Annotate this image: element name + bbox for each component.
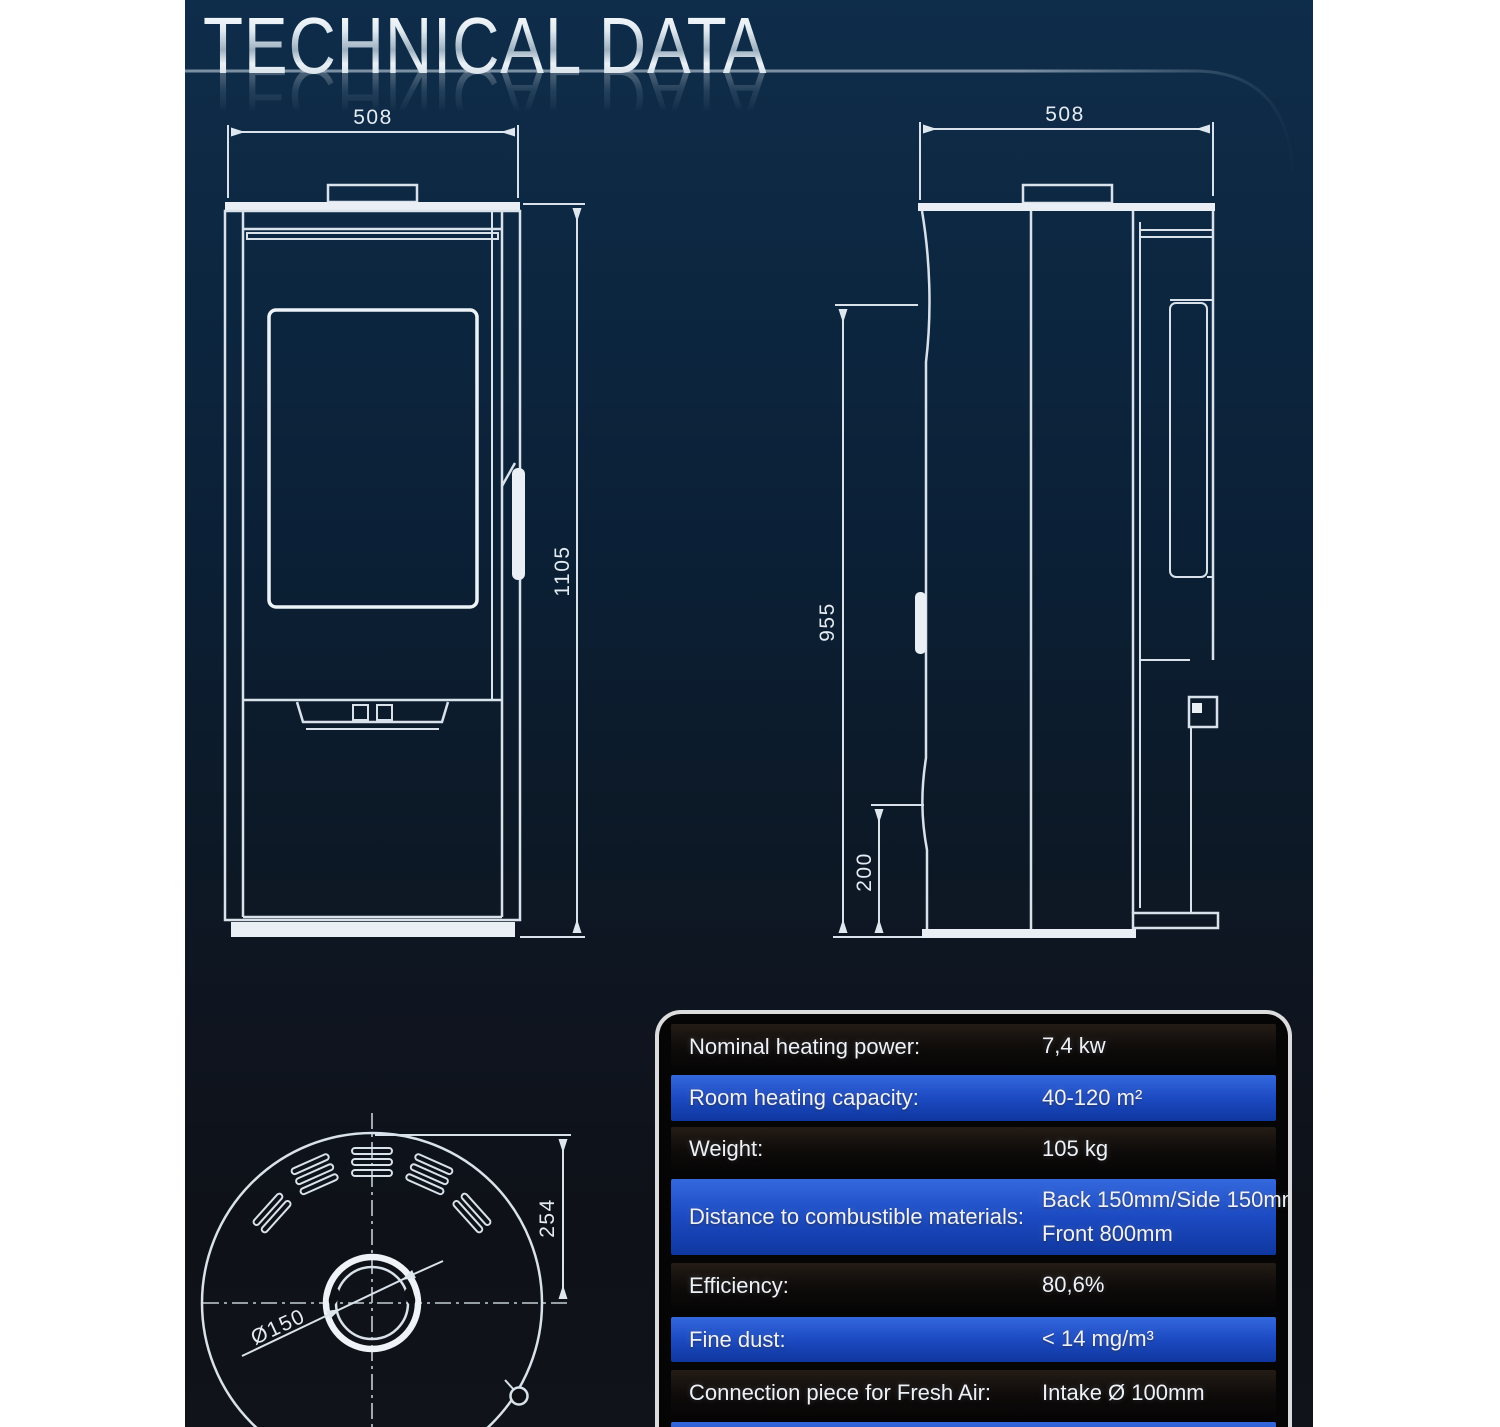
side-depth-label: 508 xyxy=(1045,103,1085,126)
door-glass xyxy=(269,310,477,607)
top-view-drawing: Ø150 254 xyxy=(202,1113,571,1427)
side-height-dimension: 955 xyxy=(816,305,922,937)
row-label: Weight: xyxy=(671,1136,763,1162)
flue-offset-label: 254 xyxy=(536,1198,559,1238)
base-plinth-front xyxy=(231,922,515,937)
front-width-label: 508 xyxy=(353,106,393,129)
rear-knob xyxy=(505,1380,528,1405)
air-vent-slot xyxy=(247,233,498,239)
row-label: Room heating capacity: xyxy=(671,1085,919,1111)
table-row-partial xyxy=(671,1422,1276,1427)
top-plate-front xyxy=(225,202,520,211)
stove-front-body xyxy=(225,185,525,937)
table-row: Connection piece for Fresh Air: Intake Ø… xyxy=(671,1370,1276,1416)
side-lower-dimension: 200 xyxy=(853,805,924,933)
table-row: Room heating capacity: 40-120 m² xyxy=(671,1075,1276,1121)
side-lower-label: 200 xyxy=(853,852,876,892)
row-label: Distance to combustible materials: xyxy=(671,1204,1024,1230)
table-row: Weight: 105 kg xyxy=(671,1127,1276,1171)
storage-handle-recess xyxy=(297,702,448,722)
row-value: Back 150mm/Side 150mm/ Front 800mm xyxy=(1042,1179,1292,1255)
top-vent-slats xyxy=(252,1148,491,1234)
row-value: 80,6% xyxy=(1042,1263,1104,1308)
page-title: TECHNICAL DATA xyxy=(203,6,767,86)
door-handle-side xyxy=(915,592,926,654)
row-label: Nominal heating power: xyxy=(671,1034,920,1060)
front-view-drawing: 508 xyxy=(225,106,585,937)
row-value: 105 kg xyxy=(1042,1127,1108,1171)
side-height-label: 955 xyxy=(816,602,839,642)
rear-base-block xyxy=(1133,913,1218,928)
storage-knob xyxy=(353,705,368,720)
page-background: 508 xyxy=(185,0,1313,1427)
table-row: Nominal heating power: 7,4 kw xyxy=(671,1024,1276,1069)
row-label: Fine dust: xyxy=(671,1327,786,1353)
base-plinth-side xyxy=(922,929,1136,938)
row-label: Connection piece for Fresh Air: xyxy=(671,1380,991,1406)
row-value: < 14 mg/m³ xyxy=(1042,1317,1154,1362)
table-row: Fine dust: < 14 mg/m³ xyxy=(671,1317,1276,1362)
front-height-label: 1105 xyxy=(551,545,574,596)
table-row: Distance to combustible materials: Back … xyxy=(671,1179,1276,1255)
front-height-dimension: 1105 xyxy=(520,204,585,937)
side-view-drawing: 508 xyxy=(816,103,1218,938)
flue-collar-front xyxy=(328,185,417,202)
storage-knob xyxy=(377,705,392,720)
row-value: 40-120 m² xyxy=(1042,1075,1142,1121)
door-handle-front xyxy=(512,468,525,580)
document-canvas: 508 xyxy=(0,0,1500,1427)
spec-table: Nominal heating power: 7,4 kw Room heati… xyxy=(655,1010,1292,1427)
stove-side-body xyxy=(915,185,1218,938)
row-label: Efficiency: xyxy=(671,1273,789,1299)
rear-heat-shield xyxy=(1170,303,1207,577)
flue-diameter-label: Ø150 xyxy=(247,1305,309,1350)
row-value: 7,4 kw xyxy=(1042,1024,1106,1069)
row-value: Intake Ø 100mm xyxy=(1042,1370,1205,1416)
top-plate-side xyxy=(918,203,1215,211)
curved-front-edge xyxy=(922,211,929,929)
flue-collar-side xyxy=(1023,185,1112,203)
table-row: Efficiency: 80,6% xyxy=(671,1263,1276,1308)
title-block: TECHNICAL DATA xyxy=(203,6,767,86)
